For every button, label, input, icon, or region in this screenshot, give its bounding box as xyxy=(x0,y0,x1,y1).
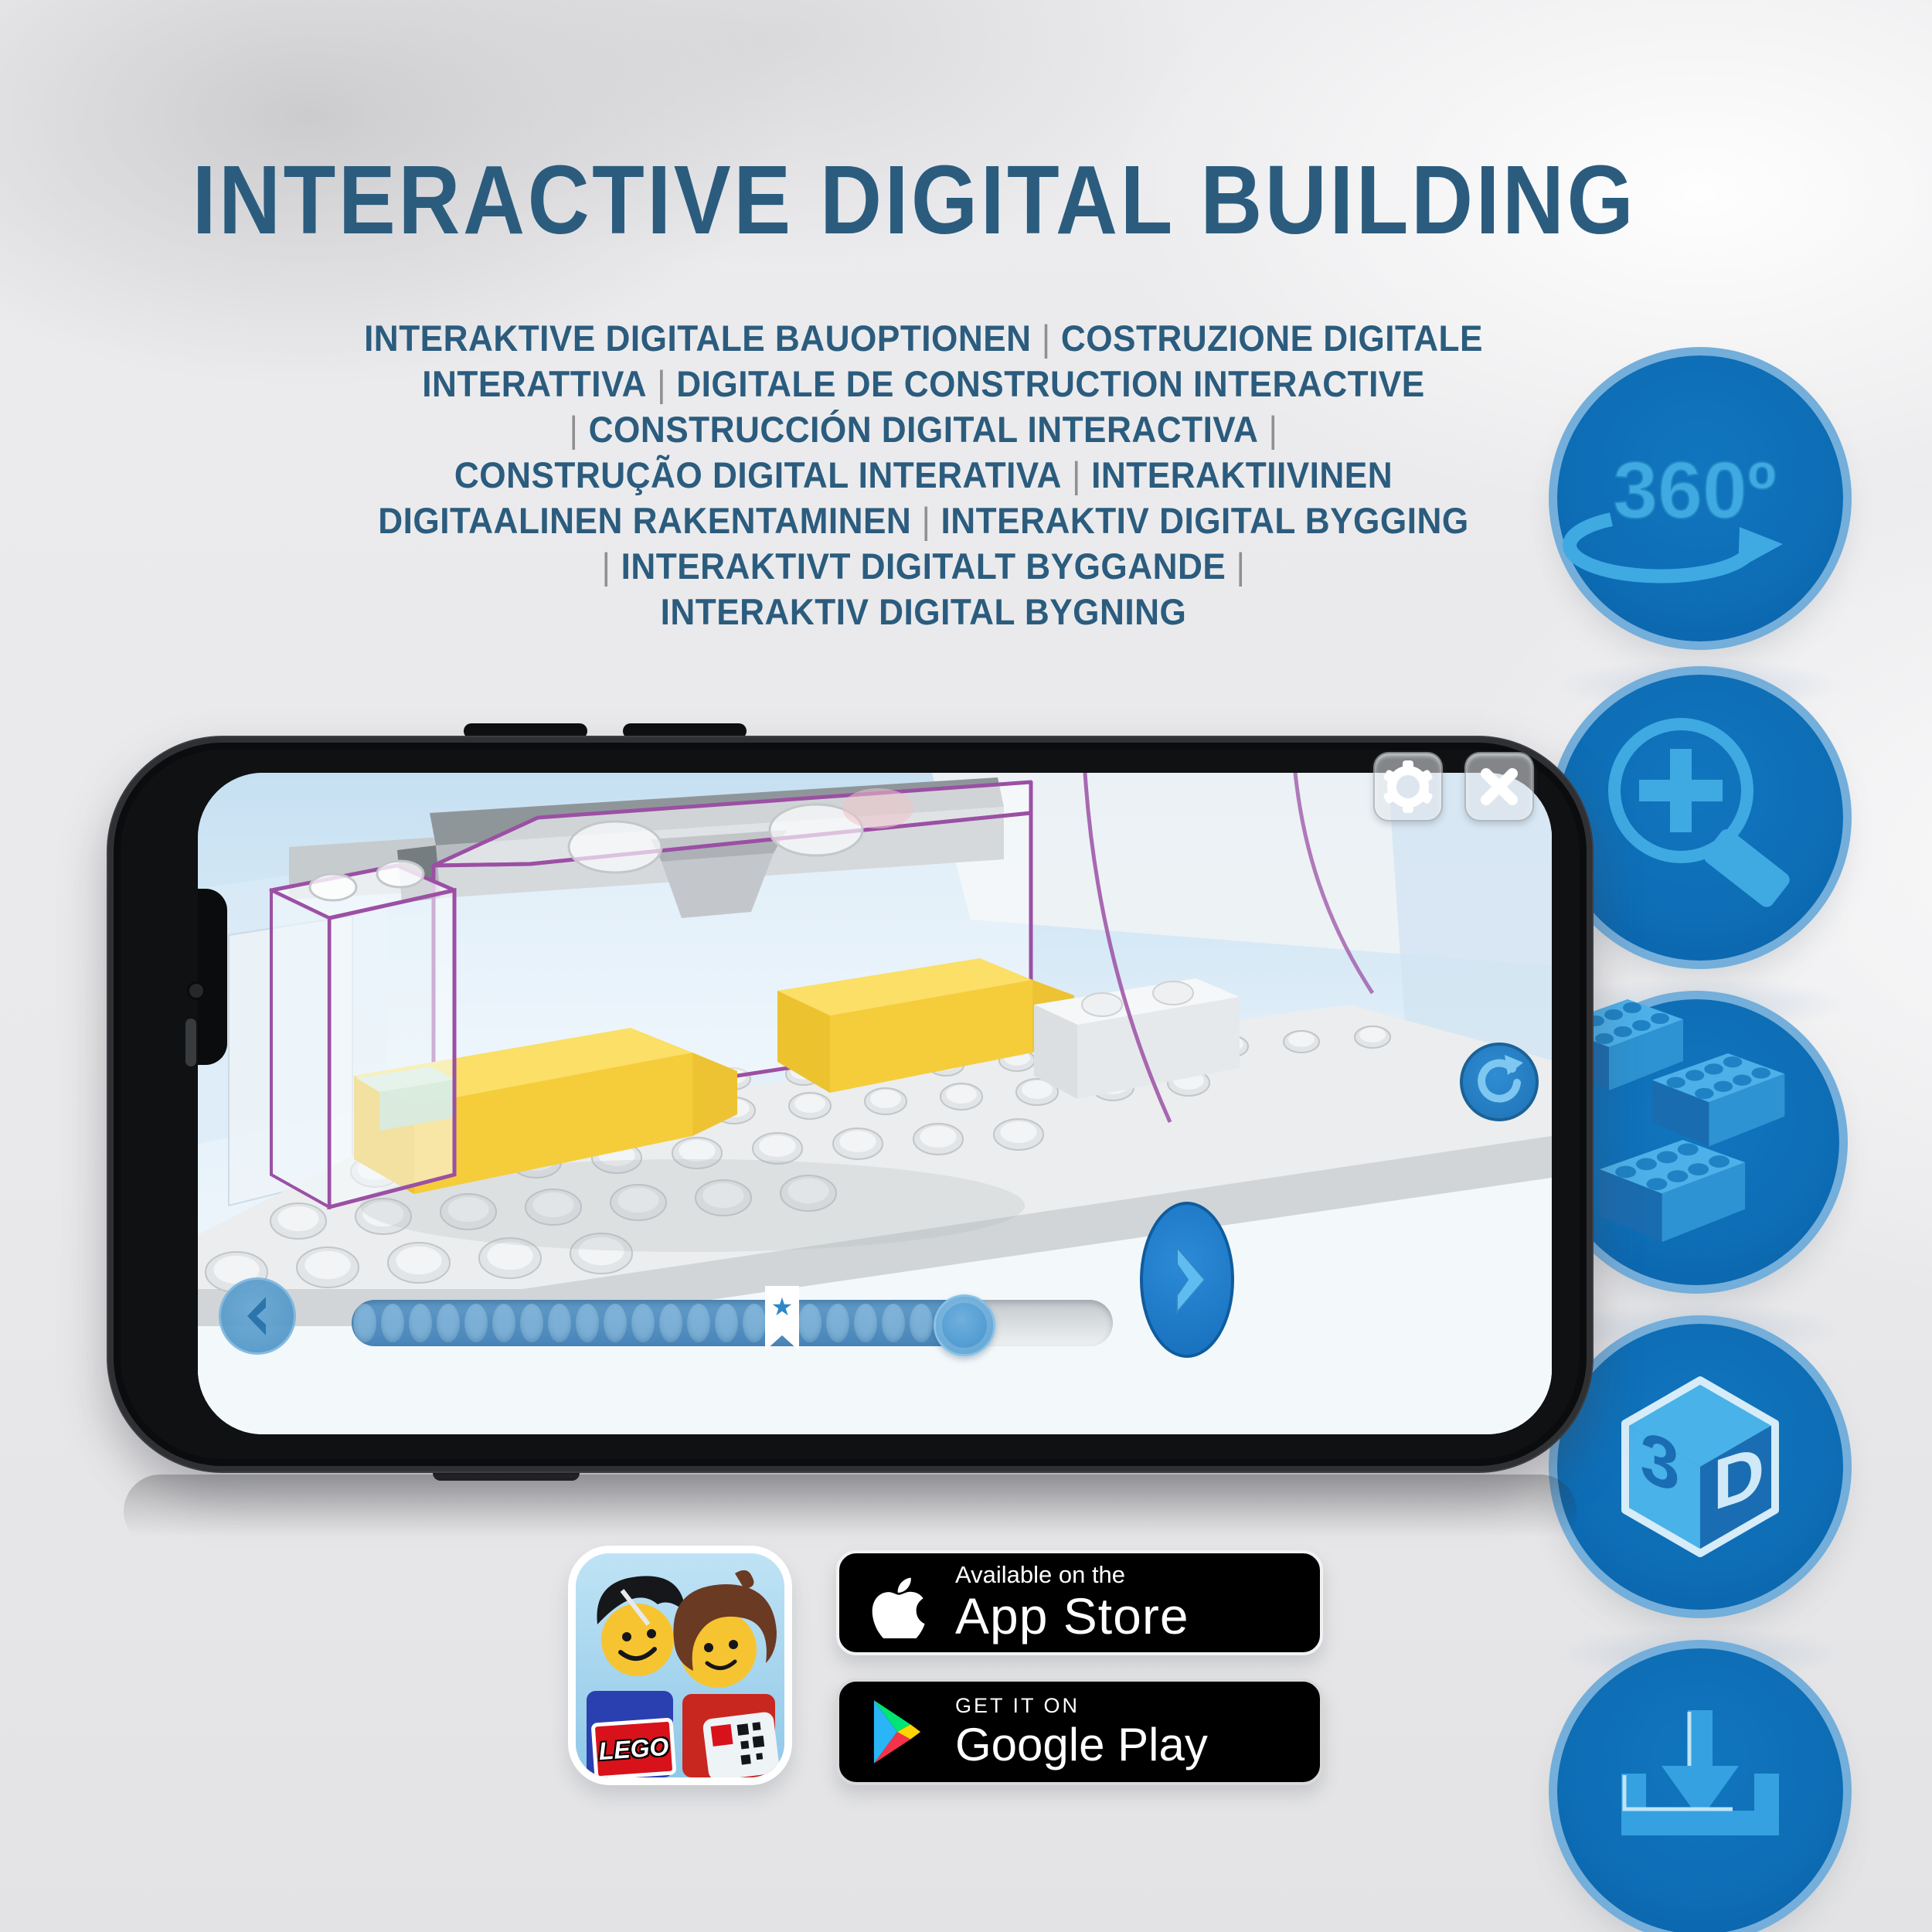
progress-dot xyxy=(826,1304,849,1342)
progress-dot xyxy=(882,1304,905,1342)
download-icon xyxy=(1557,1648,1843,1932)
subtitle-text: CONSTRUÇÃO DIGITAL INTERATIVA xyxy=(454,454,1062,495)
subtitle-text: DIGITALE DE CONSTRUCTION INTERACTIVE xyxy=(676,363,1424,404)
separator: | xyxy=(591,546,621,587)
progress-dot xyxy=(910,1304,933,1342)
separator: | xyxy=(1258,409,1287,450)
subtitle-text: INTERAKTIV DIGITAL BYGGING xyxy=(941,500,1469,541)
progress-slider-handle[interactable] xyxy=(934,1294,995,1356)
subtitle-line: CONSTRUÇÃO DIGITAL INTERATIVA|INTERAKTII… xyxy=(99,452,1748,498)
subtitle-line: INTERATTIVA|DIGITALE DE CONSTRUCTION INT… xyxy=(99,361,1748,406)
progress-dot xyxy=(631,1304,655,1342)
google-play-title: Google Play xyxy=(955,1720,1208,1769)
progress-dot xyxy=(548,1304,571,1342)
separator: | xyxy=(1032,318,1061,359)
previous-step-button[interactable] xyxy=(219,1277,296,1355)
progress-dot xyxy=(437,1304,460,1342)
multilingual-subtitle: INTERAKTIVE DIGITALE BAUOPTIONEN|COSTRUZ… xyxy=(99,315,1748,634)
progress-dot xyxy=(798,1304,821,1342)
progress-dot xyxy=(492,1304,515,1342)
progress-dot xyxy=(353,1304,376,1342)
download-glyph xyxy=(1557,1648,1843,1932)
subtitle-text: INTERAKTIIVINEN xyxy=(1091,454,1393,495)
apple-logo-glyph xyxy=(867,1567,927,1638)
google-play-badge[interactable]: GET IT ON Google Play xyxy=(836,1679,1323,1785)
lego-logo: LEGO xyxy=(591,1717,677,1780)
subtitle-text: INTERAKTIV DIGITAL BYGNING xyxy=(661,591,1187,632)
cube-d-label: D xyxy=(1713,1430,1764,1526)
progress-dot xyxy=(604,1304,627,1342)
subtitle-text: INTERAKTIVE DIGITALE BAUOPTIONEN xyxy=(364,318,1031,359)
magnifier-glyph xyxy=(1557,675,1843,961)
separator: | xyxy=(1226,546,1255,587)
phone-reflection xyxy=(124,1475,1577,1548)
360-rotation-icon: 360º xyxy=(1557,355,1843,641)
360-rotation-glyph: 360º xyxy=(1557,355,1843,641)
subtitle-line: DIGITAALINEN RAKENTAMINEN|INTERAKTIV DIG… xyxy=(99,498,1748,543)
subtitle-line: |CONSTRUCCIÓN DIGITAL INTERACTIVA| xyxy=(99,406,1748,452)
progress-dot xyxy=(687,1304,710,1342)
cube-3-label: 3 xyxy=(1640,1417,1679,1509)
play-triangle-glyph xyxy=(868,1699,927,1765)
apple-icon xyxy=(839,1567,955,1638)
chevron-left-icon xyxy=(221,1280,294,1352)
close-button[interactable] xyxy=(1464,752,1534,821)
google-play-icon xyxy=(839,1699,955,1765)
360-label: 360º xyxy=(1613,446,1777,536)
subtitle-line: INTERAKTIV DIGITAL BYGNING xyxy=(99,589,1748,634)
progress-dot xyxy=(659,1304,682,1342)
subtitle-line: INTERAKTIVE DIGITALE BAUOPTIONEN|COSTRUZ… xyxy=(99,315,1748,361)
bricks-glyph xyxy=(1553,999,1839,1285)
star-icon: ★ xyxy=(765,1292,799,1321)
page-title: INTERACTIVE DIGITAL BUILDING xyxy=(110,144,1719,256)
subtitle-line: |INTERAKTIVT DIGITALT BYGGANDE| xyxy=(99,543,1748,589)
progress-dot xyxy=(464,1304,488,1342)
progress-dot xyxy=(576,1304,599,1342)
progress-dot xyxy=(520,1304,543,1342)
gear-icon xyxy=(1375,753,1441,820)
zoom-in-icon xyxy=(1557,675,1843,961)
app-store-tagline: Available on the xyxy=(955,1563,1189,1588)
poster-canvas: INTERACTIVE DIGITAL BUILDING INTERAKTIVE… xyxy=(0,0,1932,1932)
close-icon xyxy=(1466,753,1532,820)
subtitle-text: INTERAKTIVT DIGITALT BYGGANDE xyxy=(621,546,1226,587)
google-play-tagline: GET IT ON xyxy=(955,1695,1208,1716)
earpiece-speaker xyxy=(185,1019,196,1066)
3d-cube-icon: 3 D xyxy=(1557,1324,1843,1610)
subtitle-text: DIGITAALINEN RAKENTAMINEN xyxy=(378,500,911,541)
subtitle-text: INTERATTIVA xyxy=(422,363,647,404)
separator: | xyxy=(911,500,940,541)
rotate-view-button[interactable] xyxy=(1460,1043,1539,1121)
front-camera xyxy=(187,981,206,1000)
app-store-title: App Store xyxy=(955,1590,1189,1643)
settings-button[interactable] xyxy=(1373,752,1443,821)
progress-dot xyxy=(381,1304,404,1342)
separator: | xyxy=(1062,454,1091,495)
rotate-icon xyxy=(1463,1046,1536,1118)
progress-step-dots xyxy=(352,1300,978,1346)
build-progress-remaining[interactable] xyxy=(978,1300,1113,1346)
phone-notch xyxy=(198,889,227,1065)
progress-dot xyxy=(743,1304,766,1342)
subtitle-text: COSTRUZIONE DIGITALE xyxy=(1061,318,1483,359)
app-store-badge[interactable]: Available on the App Store xyxy=(836,1550,1323,1655)
lego-bricks-icon xyxy=(1553,999,1839,1285)
separator: | xyxy=(559,409,588,450)
progress-dot xyxy=(409,1304,432,1342)
progress-dot xyxy=(715,1304,738,1342)
chevron-right-icon xyxy=(1143,1205,1231,1355)
subtitle-text: CONSTRUCCIÓN DIGITAL INTERACTIVA xyxy=(589,409,1259,450)
cube-glyph: 3 D xyxy=(1557,1324,1843,1610)
next-step-button[interactable] xyxy=(1140,1202,1234,1358)
separator: | xyxy=(647,363,676,404)
lego-app-icon[interactable]: LEGO xyxy=(568,1546,792,1785)
progress-dot xyxy=(854,1304,877,1342)
